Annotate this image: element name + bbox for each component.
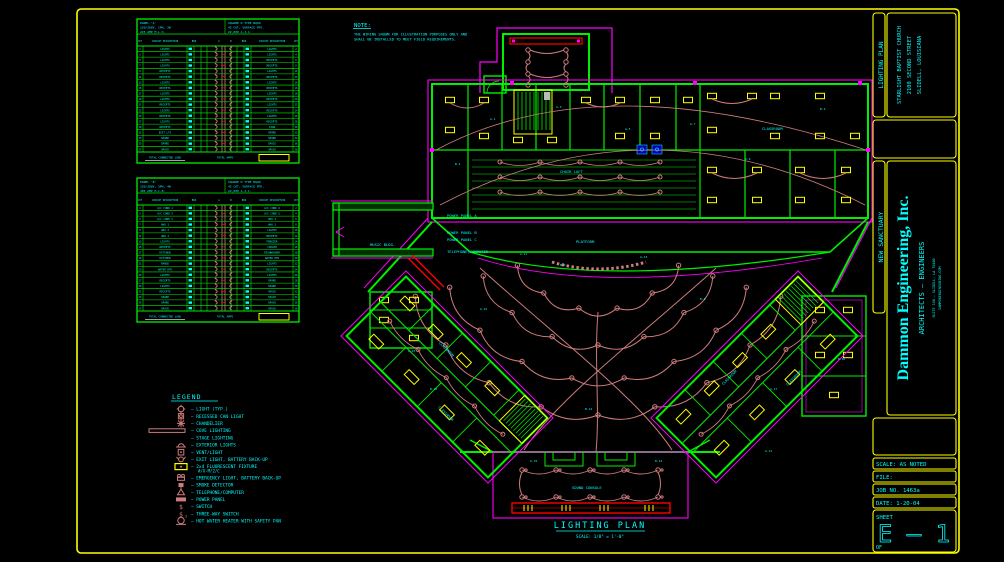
circuit-tag: B-16 bbox=[838, 357, 845, 361]
circuit-desc: DISHWASHER bbox=[264, 251, 280, 255]
circuit-desc: A/C COND 2 bbox=[157, 211, 173, 215]
legend-item-label: — EXIT LIGHT, BATTERY BACK-UP bbox=[191, 457, 268, 463]
svg-text:30: 30 bbox=[295, 126, 298, 129]
legend-item: — VENT/LIGHT bbox=[178, 449, 223, 455]
svg-text:35: 35 bbox=[139, 143, 142, 146]
panel-schedule-b: PANEL 'B'120/208V, 3PH, 4W400 AMP M.C.B.… bbox=[137, 178, 299, 322]
svg-text:19: 19 bbox=[139, 98, 142, 101]
svg-text:5: 5 bbox=[139, 59, 141, 62]
svg-text:31: 31 bbox=[139, 291, 142, 294]
svg-text:37: 37 bbox=[139, 307, 142, 310]
fluorescent-fixture bbox=[708, 197, 717, 202]
fluorescent-fixture bbox=[480, 133, 489, 138]
svg-text:17: 17 bbox=[139, 252, 142, 255]
circuit-desc: FREEZER bbox=[267, 239, 278, 243]
circuit-desc: RANGE bbox=[161, 262, 169, 266]
circuit-desc: LIGHTS bbox=[160, 119, 170, 123]
svg-text:29: 29 bbox=[139, 126, 142, 129]
legend-item: — 2x4 FLUORESCENT FIXTURE#/X-M/2/C bbox=[175, 464, 257, 474]
circuit-desc: LIGHTS bbox=[267, 47, 277, 51]
fluorescent-fixture bbox=[771, 133, 780, 138]
circuit-desc: SPARE bbox=[161, 295, 169, 299]
plan-label: TELEPHONE/COMPUTER bbox=[447, 249, 489, 254]
circuit-desc: LIGHTS bbox=[267, 52, 277, 56]
circuit-tag: A-7 bbox=[690, 122, 696, 126]
circuit-desc: LIGHTS bbox=[160, 92, 170, 96]
svg-text:30: 30 bbox=[295, 285, 298, 288]
project-name: NEW SANCTUARY bbox=[877, 211, 885, 262]
svg-text:20: 20 bbox=[295, 257, 298, 260]
svg-text:CKT: CKT bbox=[138, 40, 143, 43]
svg-text:17: 17 bbox=[139, 93, 142, 96]
legend-item: $— SWITCH bbox=[179, 503, 212, 511]
circuit-tag: B-6 bbox=[560, 263, 566, 267]
circuit-desc: LIGHTS bbox=[160, 108, 170, 112]
legend-title: LEGEND bbox=[172, 393, 201, 401]
legend-item-label: — RECESSED CAN LIGHT bbox=[191, 414, 244, 420]
plan-title: LIGHTING PLAN bbox=[554, 521, 647, 531]
svg-text:CIRCUIT DESCRIPTION: CIRCUIT DESCRIPTION bbox=[152, 40, 179, 43]
titleblock-project-title: LIGHTING PLAN bbox=[878, 41, 885, 88]
plan-title-block: LIGHTING PLAN SCALE: 1/8" = 1'-0" bbox=[554, 521, 647, 539]
circuit-desc: LIGHTS bbox=[267, 69, 277, 73]
circuit-desc: RECEPTS bbox=[267, 97, 278, 101]
circuit-desc: SPACE bbox=[268, 295, 276, 299]
circuit-tag: B-14 bbox=[655, 459, 662, 463]
svg-text:BKR: BKR bbox=[242, 40, 247, 43]
svg-text:16: 16 bbox=[295, 246, 298, 249]
circuit-desc: A/C COND 5 bbox=[264, 211, 280, 215]
circuit-desc: SPACE bbox=[268, 301, 276, 305]
svg-text:14: 14 bbox=[295, 240, 298, 243]
circuit-desc: SPACE bbox=[268, 306, 276, 310]
svg-text:33: 33 bbox=[139, 137, 142, 140]
fluorescent-fixture bbox=[616, 97, 625, 102]
legend-item-label: — LIGHT (TYP.) bbox=[191, 407, 228, 413]
plan-label: MUSIC BLDG. bbox=[370, 242, 395, 247]
circuit-desc: LIGHTS bbox=[160, 80, 170, 84]
fluorescent-fixture bbox=[548, 137, 557, 142]
svg-text:38: 38 bbox=[295, 307, 298, 310]
room-label: CLASSROOM bbox=[437, 405, 454, 422]
fluorescent-fixture bbox=[708, 127, 717, 132]
plan-label: POWER PANEL C bbox=[447, 237, 477, 242]
svg-text:2: 2 bbox=[295, 207, 297, 210]
svg-text:13: 13 bbox=[139, 81, 142, 84]
svg-text:22: 22 bbox=[295, 263, 298, 266]
circuit-desc: LIGHTS bbox=[160, 58, 170, 62]
panel-header-text: 22,000 A.I.C. bbox=[228, 30, 252, 34]
svg-text:11: 11 bbox=[139, 235, 142, 238]
legend-item: — EXIT LIGHT, BATTERY BACK-UP bbox=[177, 457, 269, 463]
plan-label: POWER PANEL B bbox=[447, 230, 477, 235]
fluorescent-fixture bbox=[771, 93, 780, 98]
circuit-desc: COOLER bbox=[267, 245, 277, 249]
legend-item-label: — POWER PANEL bbox=[191, 497, 226, 503]
circuit-desc: SPARE bbox=[161, 301, 169, 305]
svg-text:3: 3 bbox=[139, 53, 141, 56]
svg-text:36: 36 bbox=[295, 302, 298, 305]
fluorescent-fixture bbox=[842, 197, 851, 202]
circuit-desc: LIGHTS bbox=[160, 284, 170, 288]
circuit-desc: SPARE bbox=[268, 136, 276, 140]
circuit-desc: RECEPTS bbox=[160, 75, 171, 79]
svg-text:7: 7 bbox=[139, 224, 141, 227]
circuit-desc: RECEPTS bbox=[160, 114, 171, 118]
panel-header-text: 42 CKT, SURFACE MTD. bbox=[228, 25, 264, 29]
note-line1: THE WIRING SHOWN FOR ILLUSTRATION PURPOS… bbox=[354, 33, 467, 37]
svg-text:CIRCUIT DESCRIPTION: CIRCUIT DESCRIPTION bbox=[259, 199, 286, 202]
circuit-desc: SPARE bbox=[161, 142, 169, 146]
legend-item-label: — HOT WATER HEATER WITH SAFETY PAN bbox=[191, 519, 281, 525]
firm-addr2: DAMMONENGINEERING.COM bbox=[938, 267, 942, 310]
fluorescent-fixture bbox=[446, 127, 455, 132]
date-label: DATE: 1-20-04 bbox=[876, 501, 920, 507]
panel-schedule-a: PANEL 'A'120/208V, 1PH, 3W225 AMP M.L.O.… bbox=[137, 19, 299, 163]
legend-item-label: — COVE LIGHTING bbox=[191, 428, 231, 434]
circuit-desc: LIGHTS bbox=[267, 114, 277, 118]
circuit-tag: A-13 bbox=[640, 255, 647, 259]
svg-text:37: 37 bbox=[139, 148, 142, 151]
circuit-tag: B-8 bbox=[700, 297, 706, 301]
client-line2: 2100 SECOND STREET bbox=[907, 35, 913, 94]
circuit-tag: A-5 bbox=[625, 127, 631, 131]
fluorescent-fixture bbox=[708, 93, 717, 98]
legend-item: — STAGE LIGHTING bbox=[191, 435, 234, 441]
svg-text:28: 28 bbox=[295, 120, 298, 123]
circuit-desc: RECEPTS bbox=[267, 75, 278, 79]
svg-text:CIRCUIT DESCRIPTION: CIRCUIT DESCRIPTION bbox=[152, 199, 179, 202]
plan-label: POWER PANEL A bbox=[447, 213, 477, 218]
svg-text:27: 27 bbox=[139, 279, 142, 282]
legend-item-label: — CHANDELIER bbox=[191, 421, 223, 427]
circuit-desc: A/C COND 1 bbox=[157, 206, 173, 210]
circuit-desc: AHU 4 bbox=[268, 217, 276, 221]
svg-text:15: 15 bbox=[139, 87, 142, 90]
svg-text:4: 4 bbox=[295, 212, 297, 215]
circuit-desc: RECEPTS bbox=[160, 290, 171, 294]
sheet-number: E — 1 bbox=[878, 520, 950, 548]
circuit-tag: A-15 bbox=[480, 307, 487, 311]
svg-text:34: 34 bbox=[295, 137, 298, 140]
of-label: OF bbox=[876, 545, 882, 551]
svg-text:CKT: CKT bbox=[294, 199, 299, 202]
svg-text:12: 12 bbox=[295, 235, 298, 238]
legend-item: — RECESSED CAN LIGHT bbox=[178, 414, 244, 420]
fluorescent-fixture bbox=[514, 137, 523, 142]
circuit-desc: WATER HTR bbox=[158, 267, 172, 271]
circuit-desc: LIGHTS bbox=[267, 228, 277, 232]
svg-text:9: 9 bbox=[139, 229, 141, 232]
floor-plan bbox=[331, 28, 872, 518]
svg-text:3: 3 bbox=[139, 212, 141, 215]
circuit-desc: SPARE bbox=[161, 136, 169, 140]
circuit-desc: RECEPTS bbox=[160, 245, 171, 249]
svg-text:B: B bbox=[230, 40, 232, 43]
circuit-desc: SIGN bbox=[269, 125, 276, 129]
svg-text:25: 25 bbox=[139, 115, 142, 118]
svg-text:6: 6 bbox=[295, 59, 297, 62]
legend-item-label: — VENT/LIGHT bbox=[191, 450, 223, 456]
cad-sheet: LIGHTING PLAN STARLIGHT BAPTIST CHURCH 2… bbox=[0, 0, 1004, 562]
legend-item: — CHANDELIER bbox=[177, 419, 223, 427]
circuit-tag: A-21 bbox=[765, 449, 772, 453]
svg-text:3: 3 bbox=[185, 514, 187, 518]
circuit-desc: LIGHTS bbox=[160, 239, 170, 243]
circuit-desc: RECEPTS bbox=[160, 69, 171, 73]
circuit-desc: LIGHTS bbox=[160, 97, 170, 101]
circuit-desc: AHU 5 bbox=[268, 223, 276, 227]
circuit-tag: A-9 bbox=[745, 157, 751, 161]
note-title: NOTE: bbox=[354, 23, 371, 29]
svg-text:A: A bbox=[218, 199, 220, 202]
svg-text:32: 32 bbox=[295, 132, 298, 135]
plan-scale: SCALE: 1/8" = 1'-0" bbox=[576, 534, 624, 539]
fluorescent-fixture bbox=[582, 97, 591, 102]
svg-text:29: 29 bbox=[139, 285, 142, 288]
circuit-desc: AHU 2 bbox=[161, 228, 169, 232]
fluorescent-fixture bbox=[651, 97, 660, 102]
svg-text:18: 18 bbox=[295, 93, 298, 96]
job-label: JOB NO. 1463a bbox=[876, 488, 920, 494]
circuit-desc: RECEPTS bbox=[160, 278, 171, 282]
circuit-desc: SPARE bbox=[268, 131, 276, 135]
file-label: FILE: bbox=[876, 475, 893, 481]
circuit-desc: KITCHEN bbox=[160, 256, 171, 260]
svg-text:8: 8 bbox=[295, 65, 297, 68]
circuit-desc: WATER HTR bbox=[265, 256, 279, 260]
legend-item: — EXTERIOR LIGHTS bbox=[176, 443, 236, 449]
circuit-desc: LIGHTS bbox=[267, 273, 277, 277]
legend-item: — COVE LIGHTING bbox=[149, 428, 231, 434]
panel-header-text: PANEL 'A' bbox=[140, 21, 156, 25]
svg-text:21: 21 bbox=[139, 263, 142, 266]
panel-footer: TOTAL AMPS bbox=[217, 156, 234, 160]
fluorescent-fixture bbox=[796, 167, 805, 172]
circuit-desc: AHU 3 bbox=[161, 234, 169, 238]
fluorescent-fixture bbox=[753, 197, 762, 202]
circuit-tag: A-17 bbox=[770, 387, 777, 391]
legend-item-label: — TELEPHONE/COMPUTER bbox=[191, 490, 244, 496]
panel-header-text: 42 CKT, SURFACE MTD. bbox=[228, 184, 264, 188]
svg-text:10: 10 bbox=[295, 229, 298, 232]
room-label: CLASSROOM bbox=[785, 370, 802, 387]
circuit-desc: RECEPTS bbox=[267, 234, 278, 238]
circuit-desc: RECEPTS bbox=[267, 58, 278, 62]
circuit-tag: A-23 bbox=[408, 349, 415, 353]
circuit-desc: RECEPTS bbox=[267, 64, 278, 68]
svg-text:B: B bbox=[230, 199, 232, 202]
firm-addr1: SUITE 100 — SLIDELL, LA 70460 bbox=[932, 258, 936, 317]
firm-sub: ARCHITECTS — ENGINEERS bbox=[918, 242, 926, 335]
svg-text:25: 25 bbox=[139, 274, 142, 277]
svg-text:23: 23 bbox=[139, 109, 142, 112]
legend-item-label: — SWITCH bbox=[191, 504, 213, 510]
fluorescent-fixture bbox=[842, 167, 851, 172]
svg-text:16: 16 bbox=[295, 87, 298, 90]
panel-header-text: SQUARE D TYPE NQOD bbox=[228, 21, 261, 25]
svg-text:36: 36 bbox=[295, 143, 298, 146]
client-line1: STARLIGHT BAPTIST CHURCH bbox=[897, 26, 903, 104]
legend-item-label: — THREE-WAY SWITCH bbox=[191, 511, 239, 517]
legend-item-sublabel: #/X-M/2/C bbox=[198, 469, 220, 474]
panel-header-text: 120/208V, 3PH, 4W bbox=[140, 184, 171, 188]
panel-footer: TOTAL CONNECTED LOAD bbox=[149, 315, 182, 319]
circuit-desc: RECEPTS bbox=[160, 103, 171, 107]
svg-text:26: 26 bbox=[295, 115, 298, 118]
legend-item: — POWER PANEL bbox=[176, 497, 226, 503]
fluorescent-fixture bbox=[796, 197, 805, 202]
circuit-desc: LIGHTS bbox=[160, 47, 170, 51]
svg-text:33: 33 bbox=[139, 296, 142, 299]
circuit-desc: SPACE bbox=[268, 142, 276, 146]
fluorescent-fixture bbox=[684, 97, 693, 102]
legend-item: — TELEPHONE/COMPUTER bbox=[178, 489, 245, 496]
client-line3: SLIDELL, LOUISIANA bbox=[917, 35, 923, 94]
svg-text:34: 34 bbox=[295, 296, 298, 299]
svg-text:1: 1 bbox=[139, 207, 141, 210]
circuit-tag: B-2 bbox=[820, 107, 826, 111]
circuit-desc: RECEPTS bbox=[267, 108, 278, 112]
fluorescent-fixture bbox=[748, 93, 757, 98]
svg-text:32: 32 bbox=[295, 291, 298, 294]
panel-footer: TOTAL AMPS bbox=[217, 315, 234, 319]
legend-item: — HOT WATER HEATER WITH SAFETY PAN bbox=[176, 517, 281, 524]
fluorescent-fixture bbox=[446, 97, 455, 102]
circuit-desc: RECEPTS bbox=[267, 267, 278, 271]
fluorescent-fixture bbox=[616, 133, 625, 138]
legend-item: $3— THREE-WAY SWITCH bbox=[179, 510, 239, 518]
panel-header-text: 22,000 A.I.C. bbox=[228, 189, 252, 193]
legend-item-label: — EXTERIOR LIGHTS bbox=[191, 443, 236, 449]
svg-text:21: 21 bbox=[139, 104, 142, 107]
svg-text:1: 1 bbox=[139, 48, 141, 51]
fluorescent-fixture bbox=[480, 97, 489, 102]
circuit-desc: SPARE bbox=[268, 278, 276, 282]
plan-label: PLATFORM bbox=[576, 239, 595, 244]
circuit-desc: LIGHTS bbox=[267, 92, 277, 96]
circuit-desc: LIGHTS bbox=[267, 103, 277, 107]
note-block: NOTE: THE WIRING SHOWN FOR ILLUSTRATION … bbox=[353, 23, 467, 42]
svg-text:6: 6 bbox=[295, 218, 297, 221]
legend-item-label: — EMERGENCY LIGHT, BATTERY BACK-UP bbox=[191, 475, 281, 481]
circuit-tag: A-19 bbox=[530, 459, 537, 463]
svg-text:9: 9 bbox=[139, 70, 141, 73]
legend-item-label: — STAGE LIGHTING bbox=[191, 435, 234, 441]
circuit-desc: RECEPTS bbox=[267, 86, 278, 90]
svg-text:5: 5 bbox=[139, 218, 141, 221]
fluorescent-fixture bbox=[753, 167, 762, 172]
circuit-desc: RECEPTS bbox=[160, 125, 171, 129]
scale-label: SCALE: AS NOTED bbox=[876, 462, 927, 468]
firm-name: Dammon Engineering, Inc. bbox=[895, 196, 912, 381]
legend-item: — LIGHT (TYP.) bbox=[177, 405, 228, 413]
circuit-desc: KITCHEN bbox=[160, 251, 171, 255]
svg-text:18: 18 bbox=[295, 252, 298, 255]
panel-footer: TOTAL CONNECTED LOAD bbox=[149, 156, 182, 160]
circuit-desc: A/C COND 3 bbox=[157, 217, 173, 221]
circuit-desc: SPACE bbox=[161, 306, 169, 310]
panel-header-text: SQUARE D TYPE NQOD bbox=[228, 180, 261, 184]
panel-header-text: 120/208V, 1PH, 3W bbox=[140, 25, 171, 29]
svg-text:27: 27 bbox=[139, 120, 142, 123]
svg-text:38: 38 bbox=[295, 148, 298, 151]
svg-text:7: 7 bbox=[139, 65, 141, 68]
svg-text:13: 13 bbox=[139, 240, 142, 243]
circuit-desc: AHU 1 bbox=[161, 223, 169, 227]
circuit-desc: LIGHTS bbox=[160, 273, 170, 277]
note-line2: SHALL BE INSTALLED TO MEET FIELD REQUIRE… bbox=[354, 38, 456, 42]
svg-text:14: 14 bbox=[295, 81, 298, 84]
circuit-tag: A-11 bbox=[520, 252, 527, 256]
svg-text:12: 12 bbox=[295, 76, 298, 79]
fluorescent-fixture bbox=[708, 167, 717, 172]
svg-text:35: 35 bbox=[139, 302, 142, 305]
circuit-desc: LIGHTS bbox=[160, 64, 170, 68]
circuit-desc: SPACE bbox=[161, 147, 169, 151]
panel-header-text: PANEL 'B' bbox=[140, 180, 156, 184]
circuit-desc: LIGHTS bbox=[267, 80, 277, 84]
fluorescent-fixture bbox=[816, 93, 825, 98]
legend-item-label: — SMOKE DETECTOR bbox=[191, 483, 234, 489]
circuit-desc: LIGHTS bbox=[160, 52, 170, 56]
circuit-desc: RECEPTS bbox=[267, 119, 278, 123]
plan-label: CHOIR LOFT bbox=[560, 169, 584, 174]
svg-text:BKR: BKR bbox=[242, 199, 247, 202]
circuit-tag: B-10 bbox=[430, 387, 437, 391]
circuit-desc: SPACE bbox=[268, 147, 276, 151]
circuit-tag: A-1 bbox=[490, 117, 496, 121]
svg-text:19: 19 bbox=[139, 257, 142, 260]
svg-text:24: 24 bbox=[295, 268, 298, 271]
plan-label: CLASSROOM bbox=[762, 126, 783, 131]
circuit-desc: A/C COND 4 bbox=[264, 206, 280, 210]
fluorescent-fixture bbox=[651, 133, 660, 138]
legend-item: — EMERGENCY LIGHT, BATTERY BACK-UP bbox=[178, 474, 282, 481]
circuit-desc: LIGHTS bbox=[267, 262, 277, 266]
panel-header-text: 400 AMP M.C.B. bbox=[140, 189, 165, 193]
svg-text:31: 31 bbox=[139, 132, 142, 135]
drawing-canvas: LIGHTING PLAN STARLIGHT BAPTIST CHURCH 2… bbox=[0, 0, 1004, 562]
panel-header-text: 225 AMP M.L.O. bbox=[140, 30, 165, 34]
svg-text:4: 4 bbox=[295, 53, 297, 56]
svg-text:22: 22 bbox=[295, 104, 298, 107]
svg-text:28: 28 bbox=[295, 279, 298, 282]
svg-text:10: 10 bbox=[295, 70, 298, 73]
svg-text:15: 15 bbox=[139, 246, 142, 249]
svg-text:26: 26 bbox=[295, 274, 298, 277]
svg-text:CKT: CKT bbox=[294, 40, 299, 43]
circuit-desc: SPARE bbox=[268, 284, 276, 288]
svg-text:8: 8 bbox=[295, 224, 297, 227]
svg-text:CKT: CKT bbox=[138, 199, 143, 202]
circuit-desc: RECEPTS bbox=[160, 86, 171, 90]
title-block: LIGHTING PLAN STARLIGHT BAPTIST CHURCH 2… bbox=[873, 13, 956, 552]
svg-text:A: A bbox=[218, 40, 220, 43]
svg-text:2: 2 bbox=[295, 48, 297, 51]
svg-text:20: 20 bbox=[295, 98, 298, 101]
svg-text:CIRCUIT DESCRIPTION: CIRCUIT DESCRIPTION bbox=[259, 40, 286, 43]
legend: LEGEND — LIGHT (TYP.)— RECESSED CAN LIGH… bbox=[149, 393, 281, 525]
svg-text:11: 11 bbox=[139, 76, 142, 79]
svg-text:23: 23 bbox=[139, 268, 142, 271]
circuit-tag: B-4 bbox=[455, 162, 461, 166]
fluorescent-fixture bbox=[851, 133, 860, 138]
legend-item: — SMOKE DETECTOR bbox=[179, 483, 234, 489]
circuit-desc: EXIT LTS bbox=[159, 131, 172, 135]
svg-text:24: 24 bbox=[295, 109, 298, 112]
circuit-tag: A-3 bbox=[556, 105, 562, 109]
